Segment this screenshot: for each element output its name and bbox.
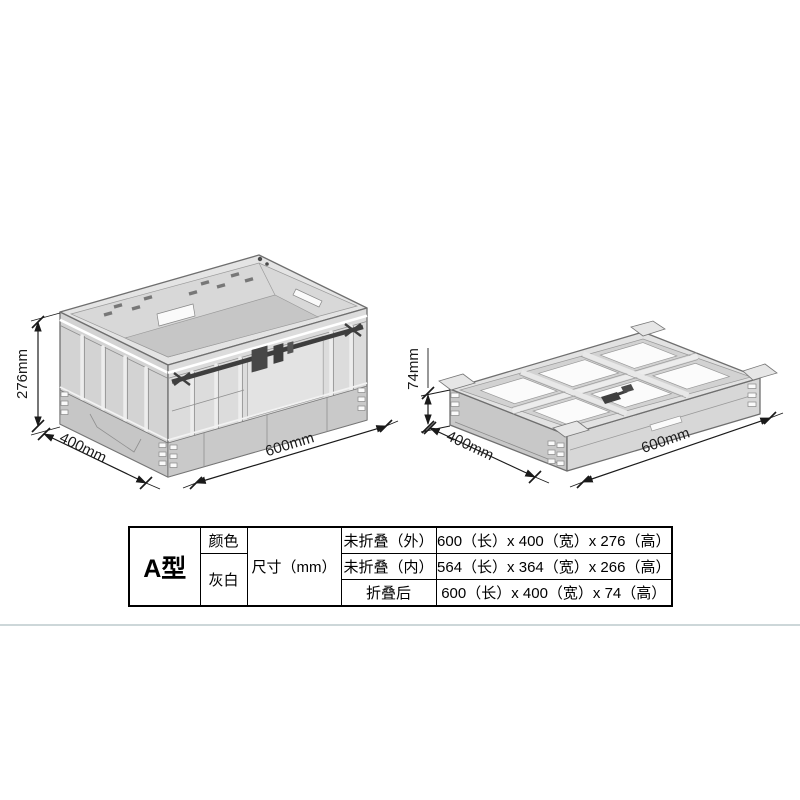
- page-separator-line: [0, 624, 800, 626]
- table-row: 灰白 未折叠（内） 564（长）x 364（宽）x 266（高）: [129, 554, 672, 580]
- row-label-folded: 折叠后: [341, 580, 436, 607]
- spec-table: A型 颜色 尺寸（mm） 未折叠（外） 600（长）x 400（宽）x 276（…: [128, 526, 673, 607]
- color-header-cell: 颜色: [200, 527, 247, 554]
- row-value-unfolded-outer: 600（长）x 400（宽）x 276（高）: [436, 527, 672, 554]
- corner-hook: [258, 257, 262, 261]
- color-value-cell: 灰白: [200, 554, 247, 607]
- row-label-unfolded-inner: 未折叠（内）: [341, 554, 436, 580]
- size-header-cell: 尺寸（mm）: [247, 527, 341, 606]
- unfolded-crate-figure: 276mm 400mm 600mm: [10, 240, 400, 500]
- height-dim-label: 74mm: [405, 348, 422, 390]
- corner-hook: [265, 262, 269, 266]
- height-dim-label: 276mm: [14, 349, 31, 399]
- unfolded-crate-drawing: [60, 255, 367, 477]
- dim-height-74: 74mm: [405, 348, 450, 433]
- folded-crate-figure: 74mm 400mm 600mm: [395, 300, 795, 510]
- row-label-unfolded-outer: 未折叠（外）: [341, 527, 436, 554]
- dim-height-276: 276mm: [14, 313, 60, 435]
- model-cell: A型: [129, 527, 200, 606]
- row-value-folded: 600（长）x 400（宽）x 74（高）: [436, 580, 672, 607]
- row-value-unfolded-inner: 564（长）x 364（宽）x 266（高）: [436, 554, 672, 580]
- table-row: A型 颜色 尺寸（mm） 未折叠（外） 600（长）x 400（宽）x 276（…: [129, 527, 672, 554]
